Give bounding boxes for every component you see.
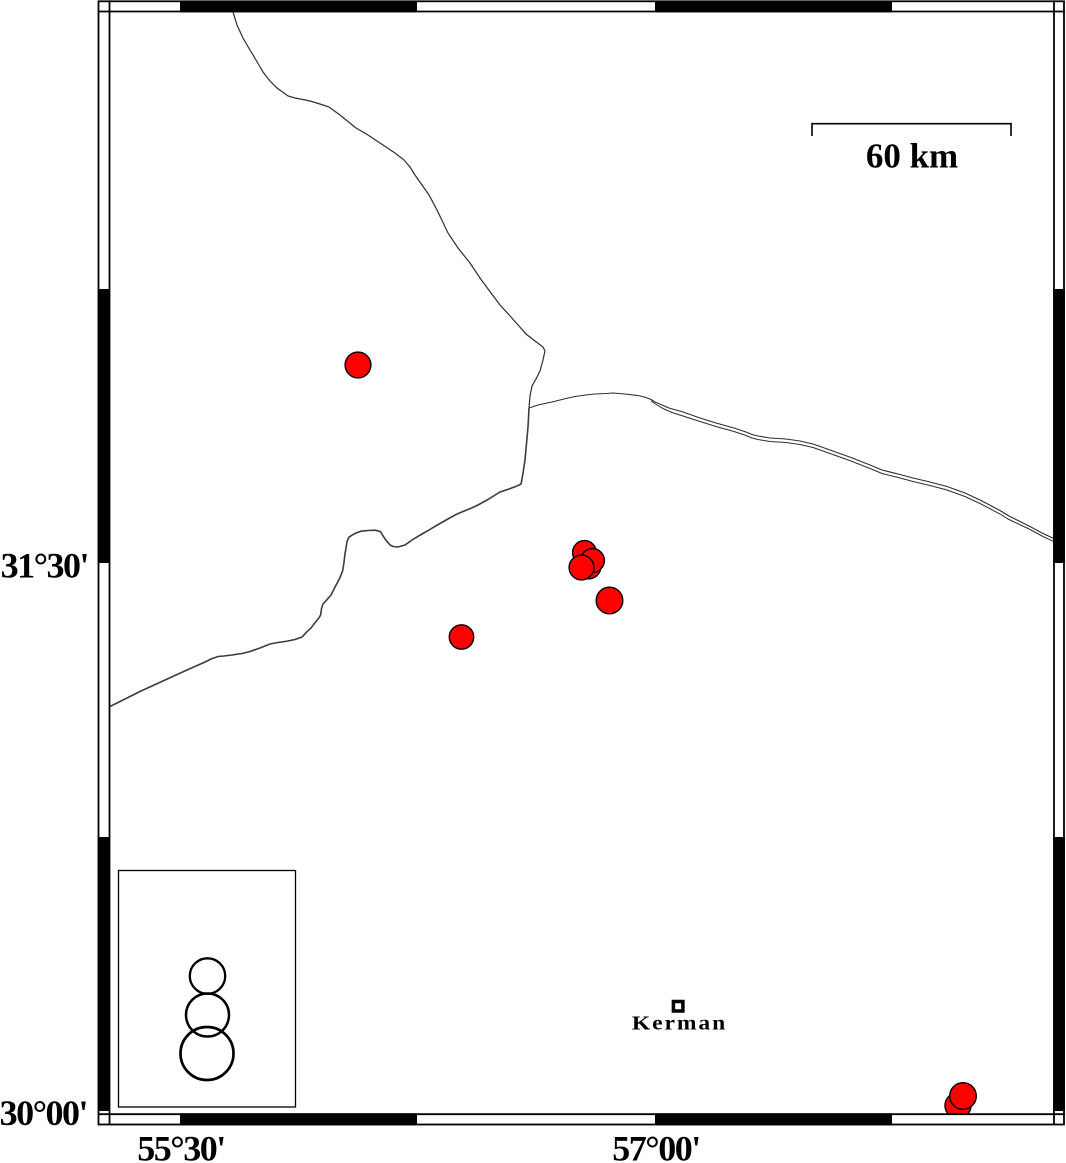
svg-text:55°30': 55°30' xyxy=(137,1129,224,1163)
svg-text:Kerman: Kerman xyxy=(632,1012,727,1034)
svg-text:60 km: 60 km xyxy=(866,137,958,176)
svg-text:57°00': 57°00' xyxy=(612,1129,699,1163)
svg-text:30°00': 30°00' xyxy=(0,1093,87,1133)
svg-text:31°30': 31°30' xyxy=(1,546,88,586)
